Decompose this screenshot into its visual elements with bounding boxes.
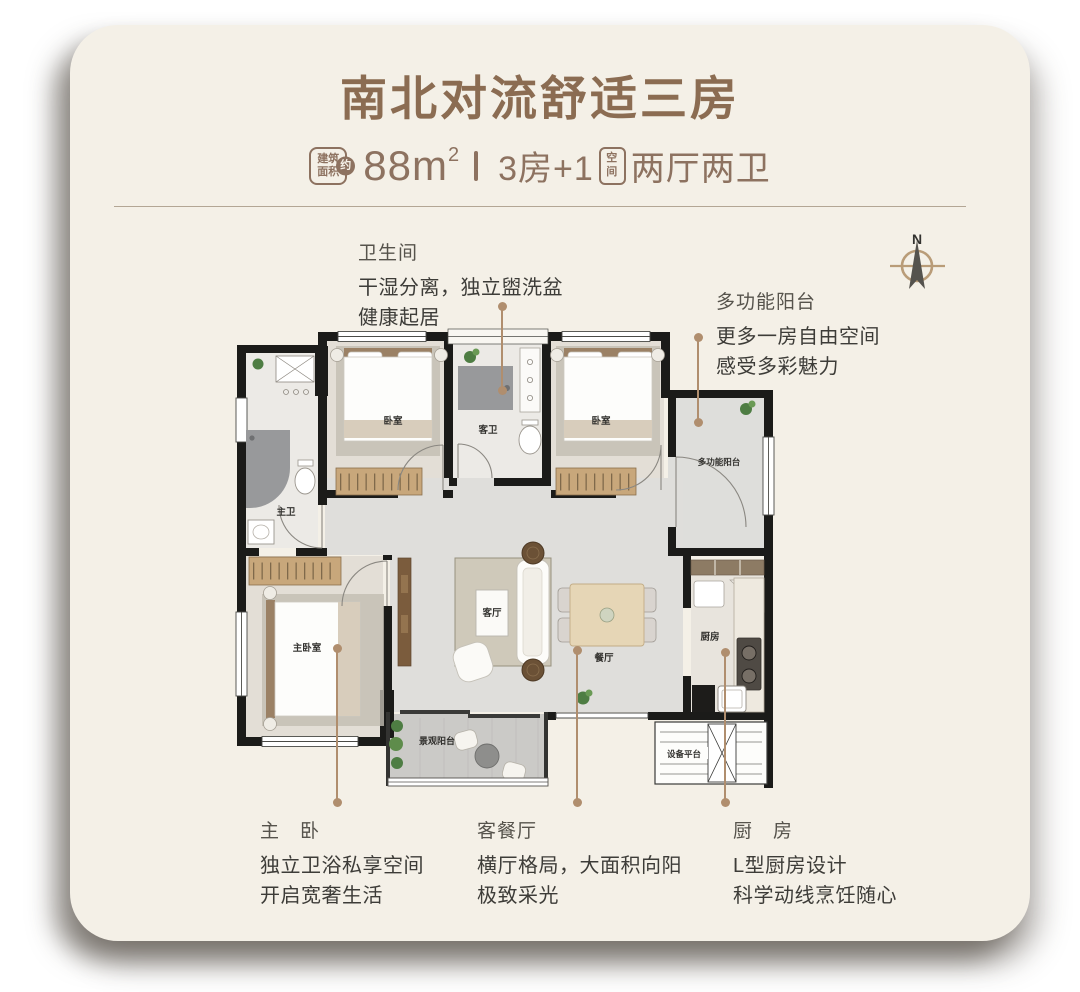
annotation-kitchen-title: 厨 房 (733, 816, 897, 843)
leader-multi-balcony (697, 337, 699, 423)
plant-icon (389, 737, 403, 751)
plant-icon (391, 757, 403, 769)
leader-kitchen (724, 652, 726, 803)
vanity (520, 348, 540, 412)
bottom-thin-wall (556, 713, 648, 718)
room-label-master-bath: 主卫 (276, 506, 296, 518)
annotation-living: 客餐厅 横厅格局，大面积向阳 极致采光 (477, 816, 682, 911)
room-label-view-balcony: 景观阳台 (419, 735, 455, 746)
annotation-kitchen-line1: L型厨房设计 (733, 851, 897, 881)
bedside-lamp (435, 349, 448, 362)
tv-cabinet (398, 558, 411, 666)
annotation-living-title: 客餐厅 (477, 816, 682, 843)
balcony-table (475, 744, 499, 768)
side-table (522, 659, 544, 681)
room-label-dining: 餐厅 (593, 652, 614, 664)
compass: N (890, 231, 945, 289)
sink (248, 520, 274, 544)
leader-living (576, 650, 578, 803)
bedside-lamp (264, 718, 277, 731)
annotation-living-line2: 极致采光 (477, 881, 682, 911)
room-label-kitchen: 厨房 (700, 631, 719, 643)
room-label-bedroom-b: 卧室 (591, 415, 611, 427)
bedside-lamp (652, 349, 665, 362)
plant-icon (586, 690, 593, 697)
plant-icon (253, 359, 264, 370)
annotation-master-title: 主 卧 (260, 816, 424, 843)
plant-icon (473, 349, 480, 356)
annotation-multi-balcony-title: 多功能阳台 (716, 287, 880, 314)
page: 南北对流舒适三房 建筑 面积 约 88m2 3房+1 空 间 两厅两卫 卫生间 … (0, 0, 1080, 992)
side-table (522, 542, 544, 564)
bedside-lamp (331, 349, 344, 362)
toilet (519, 426, 541, 454)
base-cabinet (692, 685, 715, 712)
annotation-multi-balcony-line2: 感受多彩魅力 (716, 352, 880, 382)
annotation-living-line1: 横厅格局，大面积向阳 (477, 851, 682, 881)
room-label-bedroom-a: 卧室 (383, 415, 403, 427)
equipment-platform-group: 设备平台 (655, 722, 767, 784)
plant-icon (391, 720, 403, 732)
bedside-lamp (264, 587, 277, 600)
room-label-multi-balcony: 多功能阳台 (698, 457, 741, 467)
annotation-multi-balcony-line1: 更多一房自由空间 (716, 322, 880, 352)
toilet (295, 468, 315, 494)
plant-icon (749, 401, 756, 408)
annotation-bathroom-line2: 健康起居 (358, 303, 563, 333)
annotation-master-line2: 开启宽奢生活 (260, 881, 424, 911)
annotation-kitchen-line2: 科学动线烹饪随心 (733, 881, 897, 911)
wardrobe (556, 468, 636, 495)
annotation-bathroom-title: 卫生间 (358, 238, 563, 265)
annotation-bathroom-line1: 干湿分离，独立盥洗盆 (358, 273, 563, 303)
annotation-multi-balcony: 多功能阳台 更多一房自由空间 感受多彩魅力 (716, 287, 880, 382)
annotation-master-line1: 独立卫浴私享空间 (260, 851, 424, 881)
annotation-kitchen: 厨 房 L型厨房设计 科学动线烹饪随心 (733, 816, 897, 911)
appliance (694, 581, 724, 607)
bedside-lamp (551, 349, 564, 362)
leader-master (336, 648, 338, 803)
room-label-master-bedroom: 主卧室 (293, 642, 322, 654)
room-label-living: 客厅 (481, 607, 502, 619)
centerpiece (600, 608, 614, 622)
room-label-guest-bath: 客卫 (477, 424, 498, 436)
annotation-master: 主 卧 独立卫浴私享空间 开启宽奢生活 (260, 816, 424, 911)
annotation-bathroom: 卫生间 干湿分离，独立盥洗盆 健康起居 (358, 238, 563, 333)
upper-cabinets (691, 560, 764, 575)
room-label-equipment: 设备平台 (667, 749, 702, 759)
